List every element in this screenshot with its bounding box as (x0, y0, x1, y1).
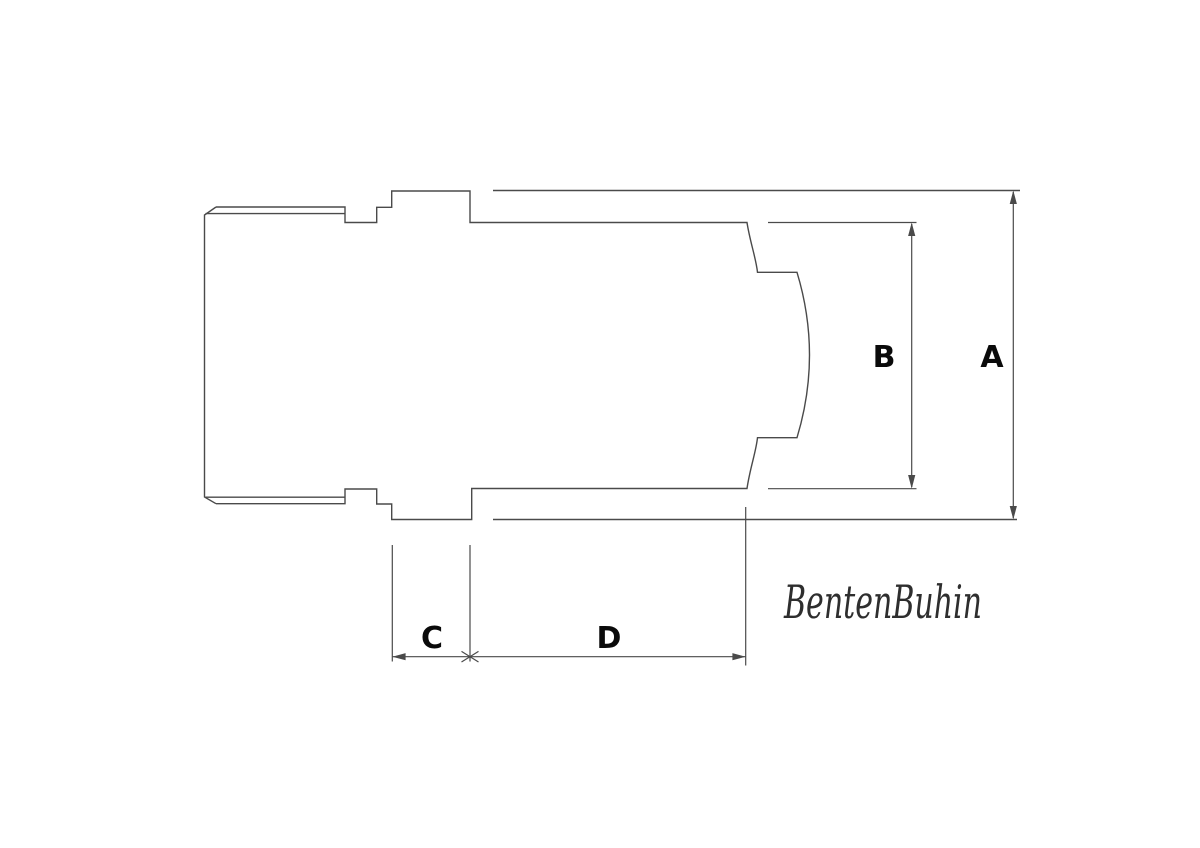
brand-signature: BentenBuhin (783, 575, 982, 629)
dimension-label-a: A (980, 340, 1004, 375)
arrow-d-right-icon (732, 653, 745, 660)
dimension-label-b: B (873, 340, 896, 375)
dimension-label-c: C (421, 621, 443, 656)
technical-drawing-canvas: A B C D BentenBuhin (0, 0, 1200, 848)
part-outline-group (205, 191, 1021, 520)
dimension-label-d: D (597, 621, 622, 656)
arrow-a-down-icon (1010, 506, 1017, 520)
part-left-end-cap (205, 207, 217, 504)
arrow-b-down-icon (908, 475, 915, 489)
arrow-b-up-icon (908, 223, 915, 237)
arrow-a-up-icon (1010, 191, 1017, 205)
drawing-page: A B C D BentenBuhin (0, 0, 1200, 848)
arrow-c-left-icon (392, 653, 405, 660)
part-profile (216, 191, 810, 520)
